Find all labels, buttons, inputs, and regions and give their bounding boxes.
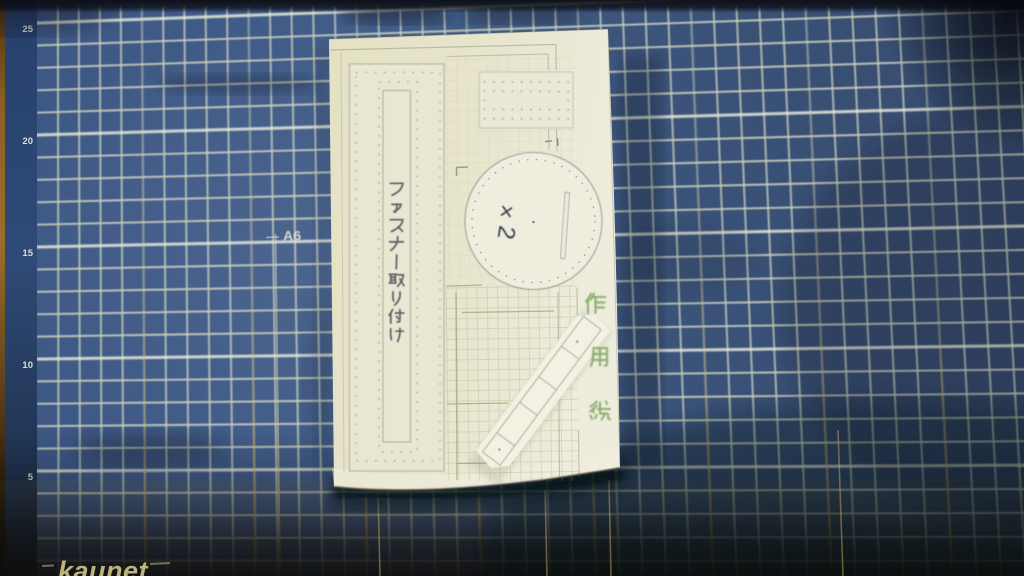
svg-text:20: 20	[22, 136, 33, 147]
svg-text:10: 10	[22, 360, 33, 371]
svg-text:kaunet: kaunet	[58, 556, 149, 576]
svg-text:15: 15	[22, 248, 33, 259]
svg-text:A6: A6	[283, 228, 301, 244]
